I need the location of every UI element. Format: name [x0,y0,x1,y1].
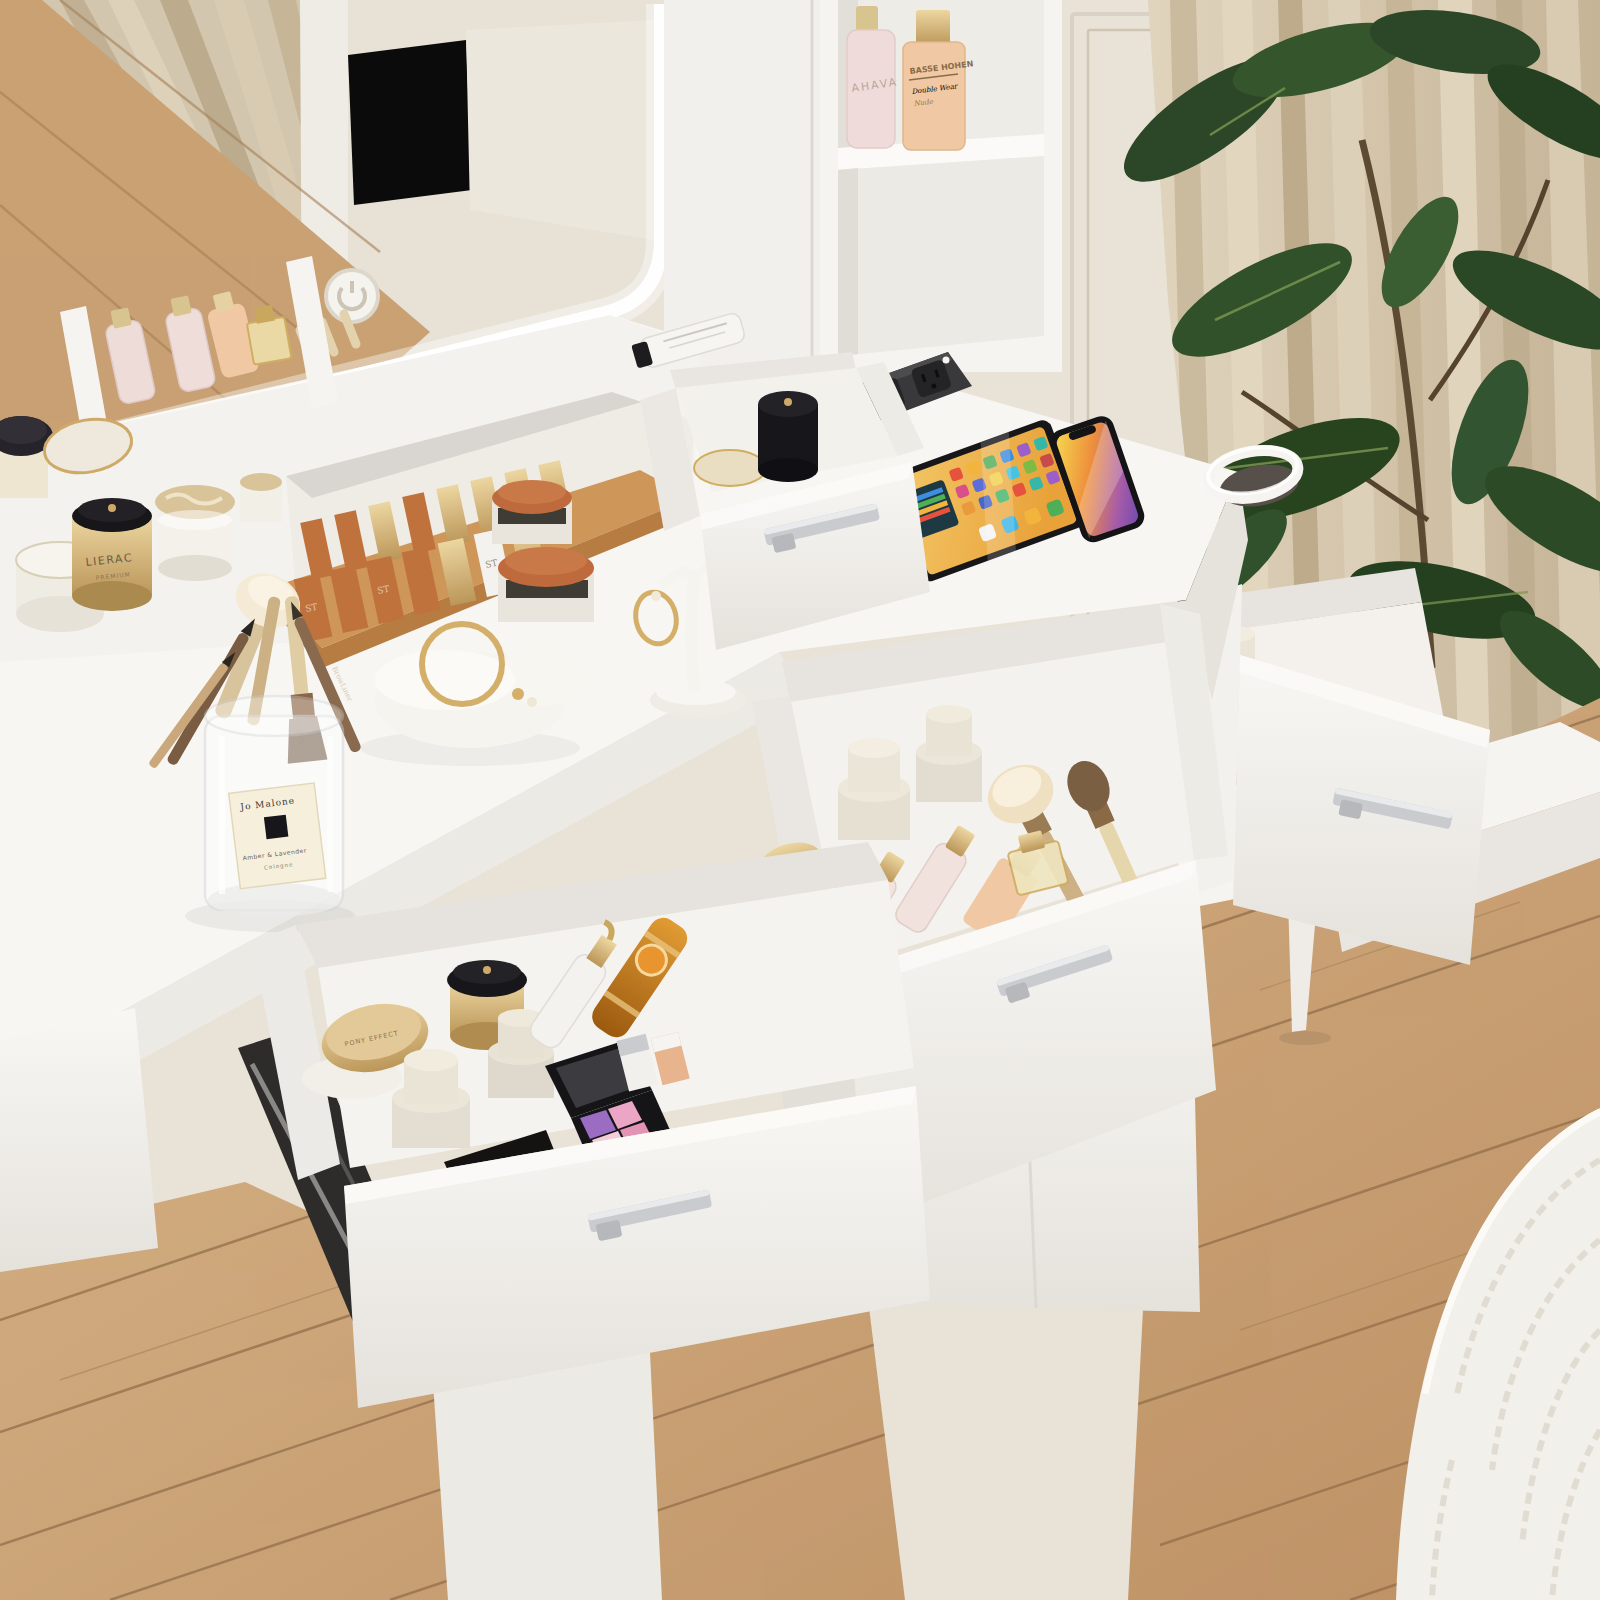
marble-lid-jar [155,485,235,581]
small-cream-jar [240,473,282,522]
reflected-dark-doorway [348,40,472,205]
jo-malone-label: Jo Malone Amber & Lavender Cologne [229,783,326,889]
tower-cubby-bottom [838,156,1044,356]
scene-canvas: AHAVA [0,0,1600,1600]
orange-lid-jar [492,480,572,544]
cream-compact [694,450,766,486]
desk-left-leg-panel [0,1008,158,1272]
black-jar [758,391,818,482]
cream-jar-stack [838,738,910,840]
touch-switch[interactable] [326,270,378,322]
orange-lid-jar [498,547,594,622]
lierac-jar: LIERAC PREMIUM [72,498,152,611]
indicator-led [943,357,950,364]
wall-shelf-tower: AHAVA BASSE HOHEN Double Wear Nude [820,0,1062,372]
vanity-product-photo: AHAVA [0,0,1600,1600]
glass-cup: Jo Malone Amber & Lavender Cologne [205,696,343,917]
reflected-wall [466,20,655,240]
